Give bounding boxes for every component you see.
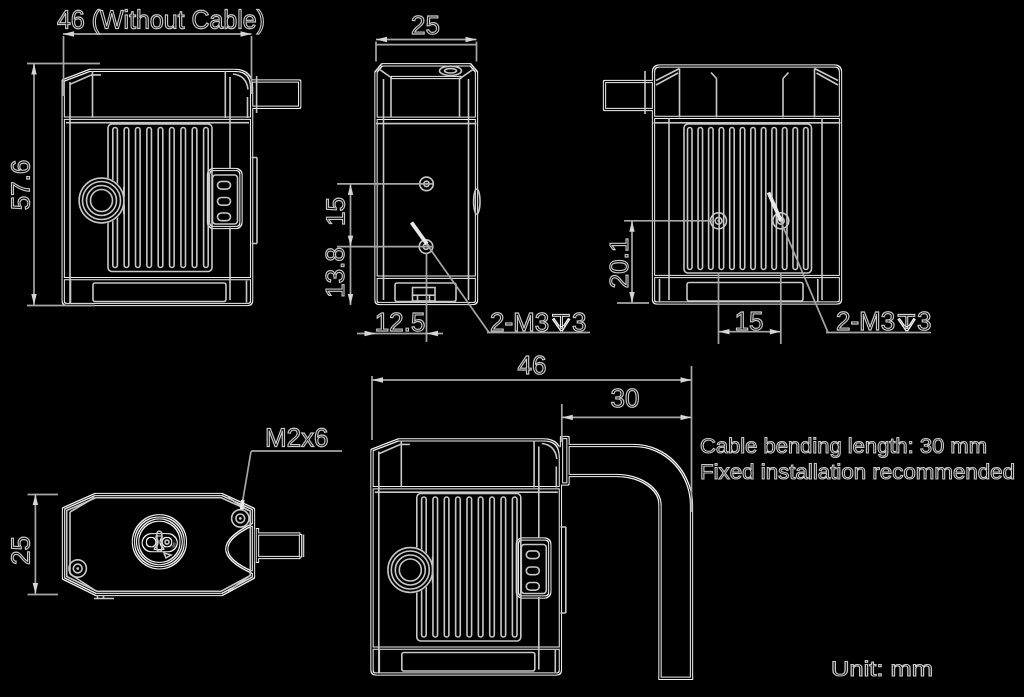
svg-text:46: 46 — [518, 350, 547, 380]
svg-text:57.6: 57.6 — [6, 160, 36, 211]
svg-text:20.1: 20.1 — [604, 238, 634, 289]
svg-text:M2x6: M2x6 — [265, 423, 329, 453]
svg-text:Fixed installation recommended: Fixed installation recommended — [700, 461, 1015, 484]
svg-text:Unit: mm: Unit: mm — [831, 658, 933, 681]
svg-text:25: 25 — [411, 10, 440, 40]
svg-text:Cable bending length: 30 mm: Cable bending length: 30 mm — [700, 435, 987, 458]
svg-text:25: 25 — [5, 536, 35, 565]
svg-text:30: 30 — [611, 383, 640, 413]
svg-text:2-M3: 2-M3 — [836, 306, 895, 336]
svg-text:12.5: 12.5 — [375, 307, 426, 337]
svg-text:2-M3: 2-M3 — [490, 307, 549, 337]
svg-text:15: 15 — [735, 306, 764, 336]
svg-text:3: 3 — [572, 307, 586, 337]
svg-text:13.8: 13.8 — [320, 247, 350, 298]
svg-text:15: 15 — [321, 197, 351, 226]
svg-text:46 (Without Cable): 46 (Without Cable) — [57, 5, 265, 35]
svg-text:3: 3 — [917, 306, 931, 336]
